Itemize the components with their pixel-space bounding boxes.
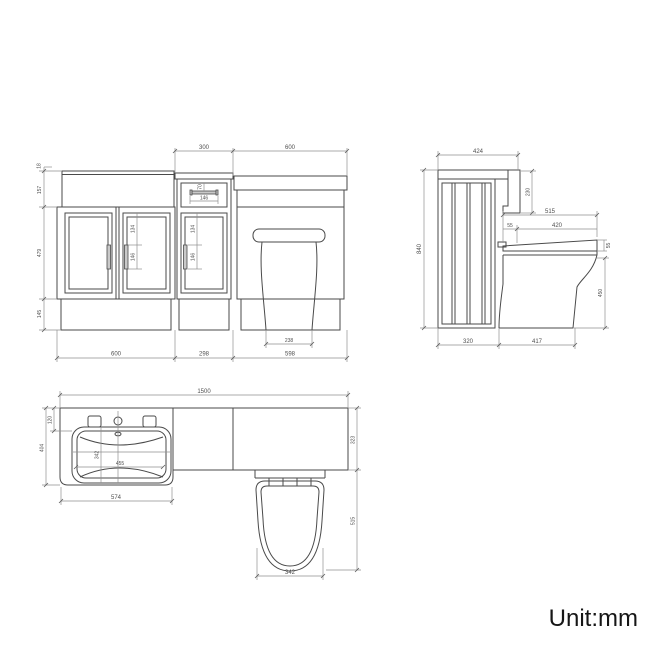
dim-label: 134 (131, 225, 137, 234)
dim-front-pan-base: 238 (264, 330, 314, 348)
toilet-seat-front (253, 229, 325, 242)
right-door-handle (125, 245, 129, 269)
left-door (65, 213, 112, 293)
technical-drawing-canvas: 300 600 18 157 479 145 (0, 0, 650, 650)
dim-label: 145 (37, 310, 43, 319)
dim-plan-pan-width: 342 (255, 548, 325, 580)
unit-label: Unit:mm (549, 605, 638, 633)
dim-label: 146 (131, 253, 137, 262)
dim-label: 342 (285, 570, 296, 576)
dim-label: 157 (37, 186, 43, 195)
bowl-front-profile (573, 255, 597, 328)
dim-label: 1500 (197, 389, 211, 395)
basin-apron (62, 171, 174, 207)
wc-top-slab (234, 176, 347, 190)
mid-unit-plinth (179, 299, 229, 330)
dim-label: 120 (48, 416, 54, 425)
cistern-profile (503, 170, 520, 213)
dim-plan-basin-unit-width: 574 (59, 487, 174, 505)
seat-inner (261, 486, 319, 566)
dim-front-bottom-chain: 600 298 598 (55, 330, 349, 362)
dim-label: 515 (351, 517, 357, 526)
bowl-back-profile (499, 255, 503, 328)
dim-label: 298 (199, 352, 210, 358)
basin-back-curve (80, 437, 163, 445)
side-elevation-view: 424 840 230 515 5 (417, 149, 612, 349)
corner-bracket (88, 416, 101, 427)
dim-label: 424 (473, 149, 484, 155)
mid-door (181, 213, 227, 293)
plan-view: 1500 120 404 342 455 (40, 389, 362, 580)
dim-label: 420 (552, 223, 563, 229)
dim-label: 574 (111, 495, 122, 501)
dim-label: 146 (191, 253, 197, 262)
dim-front-top-chain: 300 600 (173, 145, 349, 176)
vanity-unit-front (57, 171, 175, 330)
dim-label: 515 (545, 209, 556, 215)
wc-plinth (241, 299, 340, 330)
dim-label: 455 (116, 461, 125, 467)
worktop-plan (173, 408, 348, 478)
dim-label: 600 (285, 145, 296, 151)
dim-plan-left-chain: 120 404 (40, 406, 73, 487)
dim-label: 417 (532, 339, 543, 345)
pan-left-profile (261, 242, 266, 330)
basin-inner-rim (77, 431, 166, 478)
dim-label: 404 (40, 444, 46, 453)
toilet-front (253, 229, 325, 330)
seat-outer (256, 481, 324, 571)
basin-unit-plan (60, 408, 173, 485)
dim-side-cistern: 230 (521, 169, 536, 215)
dim-label: 598 (285, 352, 296, 358)
dim-label: 479 (37, 249, 43, 258)
dim-side-bottom-chain: 320 417 (436, 328, 577, 349)
mid-door-handle (184, 245, 188, 269)
wc-panel (237, 190, 344, 299)
dim-label: 18 (37, 163, 43, 169)
mid-unit-top (175, 173, 233, 179)
wc-unit-front (234, 176, 347, 330)
toilet-side (498, 240, 597, 328)
dim-label: 600 (111, 352, 122, 358)
dim-label: 70 (198, 184, 204, 190)
side-panel (438, 170, 520, 328)
dim-label: 238 (285, 338, 294, 344)
dim-label: 320 (463, 339, 474, 345)
dim-label: 230 (526, 188, 532, 197)
dim-label: 55 (507, 223, 513, 229)
side-top-slab (438, 170, 508, 179)
corner-bracket (143, 416, 156, 427)
worktop-outline (173, 408, 348, 470)
dim-plan-overall: 1500 (58, 389, 350, 408)
dim-label: 450 (598, 289, 604, 298)
dim-plan-right-chain: 323 515 (326, 406, 361, 572)
drawer-handle (192, 191, 216, 194)
dim-label: 342 (95, 451, 101, 460)
dim-label: 323 (351, 436, 357, 445)
dim-mid-door-handle: 134 146 (188, 213, 202, 269)
toilet-plan (256, 478, 324, 571)
dim-label: 55 (606, 243, 612, 249)
front-elevation-view: 300 600 18 157 479 145 (37, 145, 350, 362)
dim-label: 300 (199, 145, 210, 151)
dim-right-door-handle: 134 146 (128, 213, 142, 269)
dim-front-left-chain: 18 157 479 145 (37, 163, 63, 332)
pan-right-profile (312, 242, 317, 330)
dim-label: 840 (417, 243, 423, 254)
basin-front-curve (80, 468, 163, 477)
dim-side-top-depth: 424 (436, 149, 520, 170)
dim-label: 146 (200, 196, 209, 202)
seat-hinge-bar (269, 478, 311, 486)
dim-label: 134 (191, 225, 197, 234)
vanity-plinth (61, 299, 171, 330)
dim-side-height: 840 (417, 168, 438, 330)
dim-side-pan-height: 450 (573, 256, 609, 330)
left-door-handle (107, 245, 111, 269)
